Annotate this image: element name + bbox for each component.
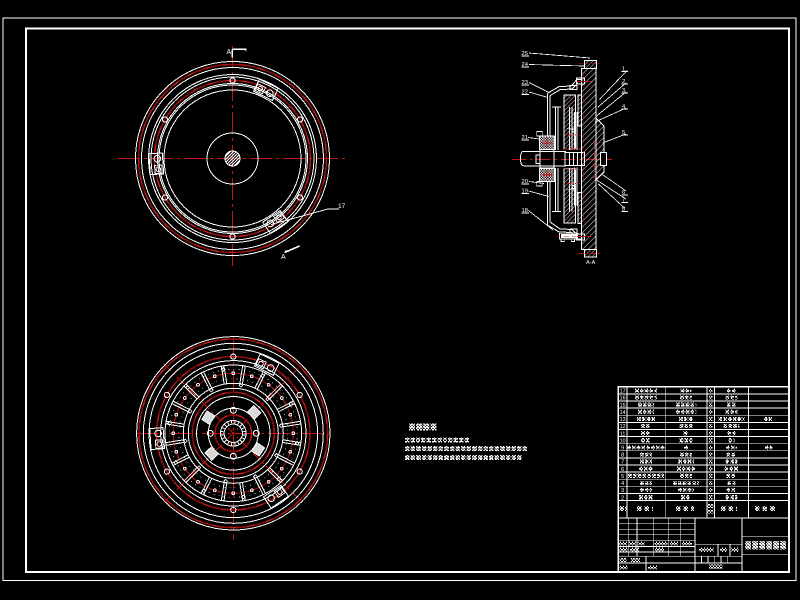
svg-text:6: 6 [621, 467, 624, 473]
svg-text:4: 4 [621, 481, 624, 487]
svg-text:8: 8 [621, 453, 624, 459]
svg-text:16: 16 [620, 396, 626, 402]
svg-text:5: 5 [621, 474, 624, 480]
svg-text:12: 12 [620, 424, 626, 430]
svg-text:A: A [281, 254, 286, 261]
svg-text:17: 17 [620, 389, 626, 395]
svg-text:A-A: A-A [586, 260, 596, 266]
svg-text:11: 11 [620, 431, 626, 437]
svg-text:14: 14 [620, 410, 626, 416]
svg-text:17: 17 [338, 203, 346, 210]
svg-text:9: 9 [621, 446, 624, 452]
svg-text:13: 13 [620, 417, 626, 423]
svg-text:15: 15 [620, 403, 626, 409]
svg-text:10: 10 [620, 438, 626, 444]
svg-text:7: 7 [621, 460, 624, 466]
svg-text:A: A [227, 49, 232, 56]
svg-text:2: 2 [621, 495, 624, 501]
svg-text:3: 3 [621, 488, 624, 494]
